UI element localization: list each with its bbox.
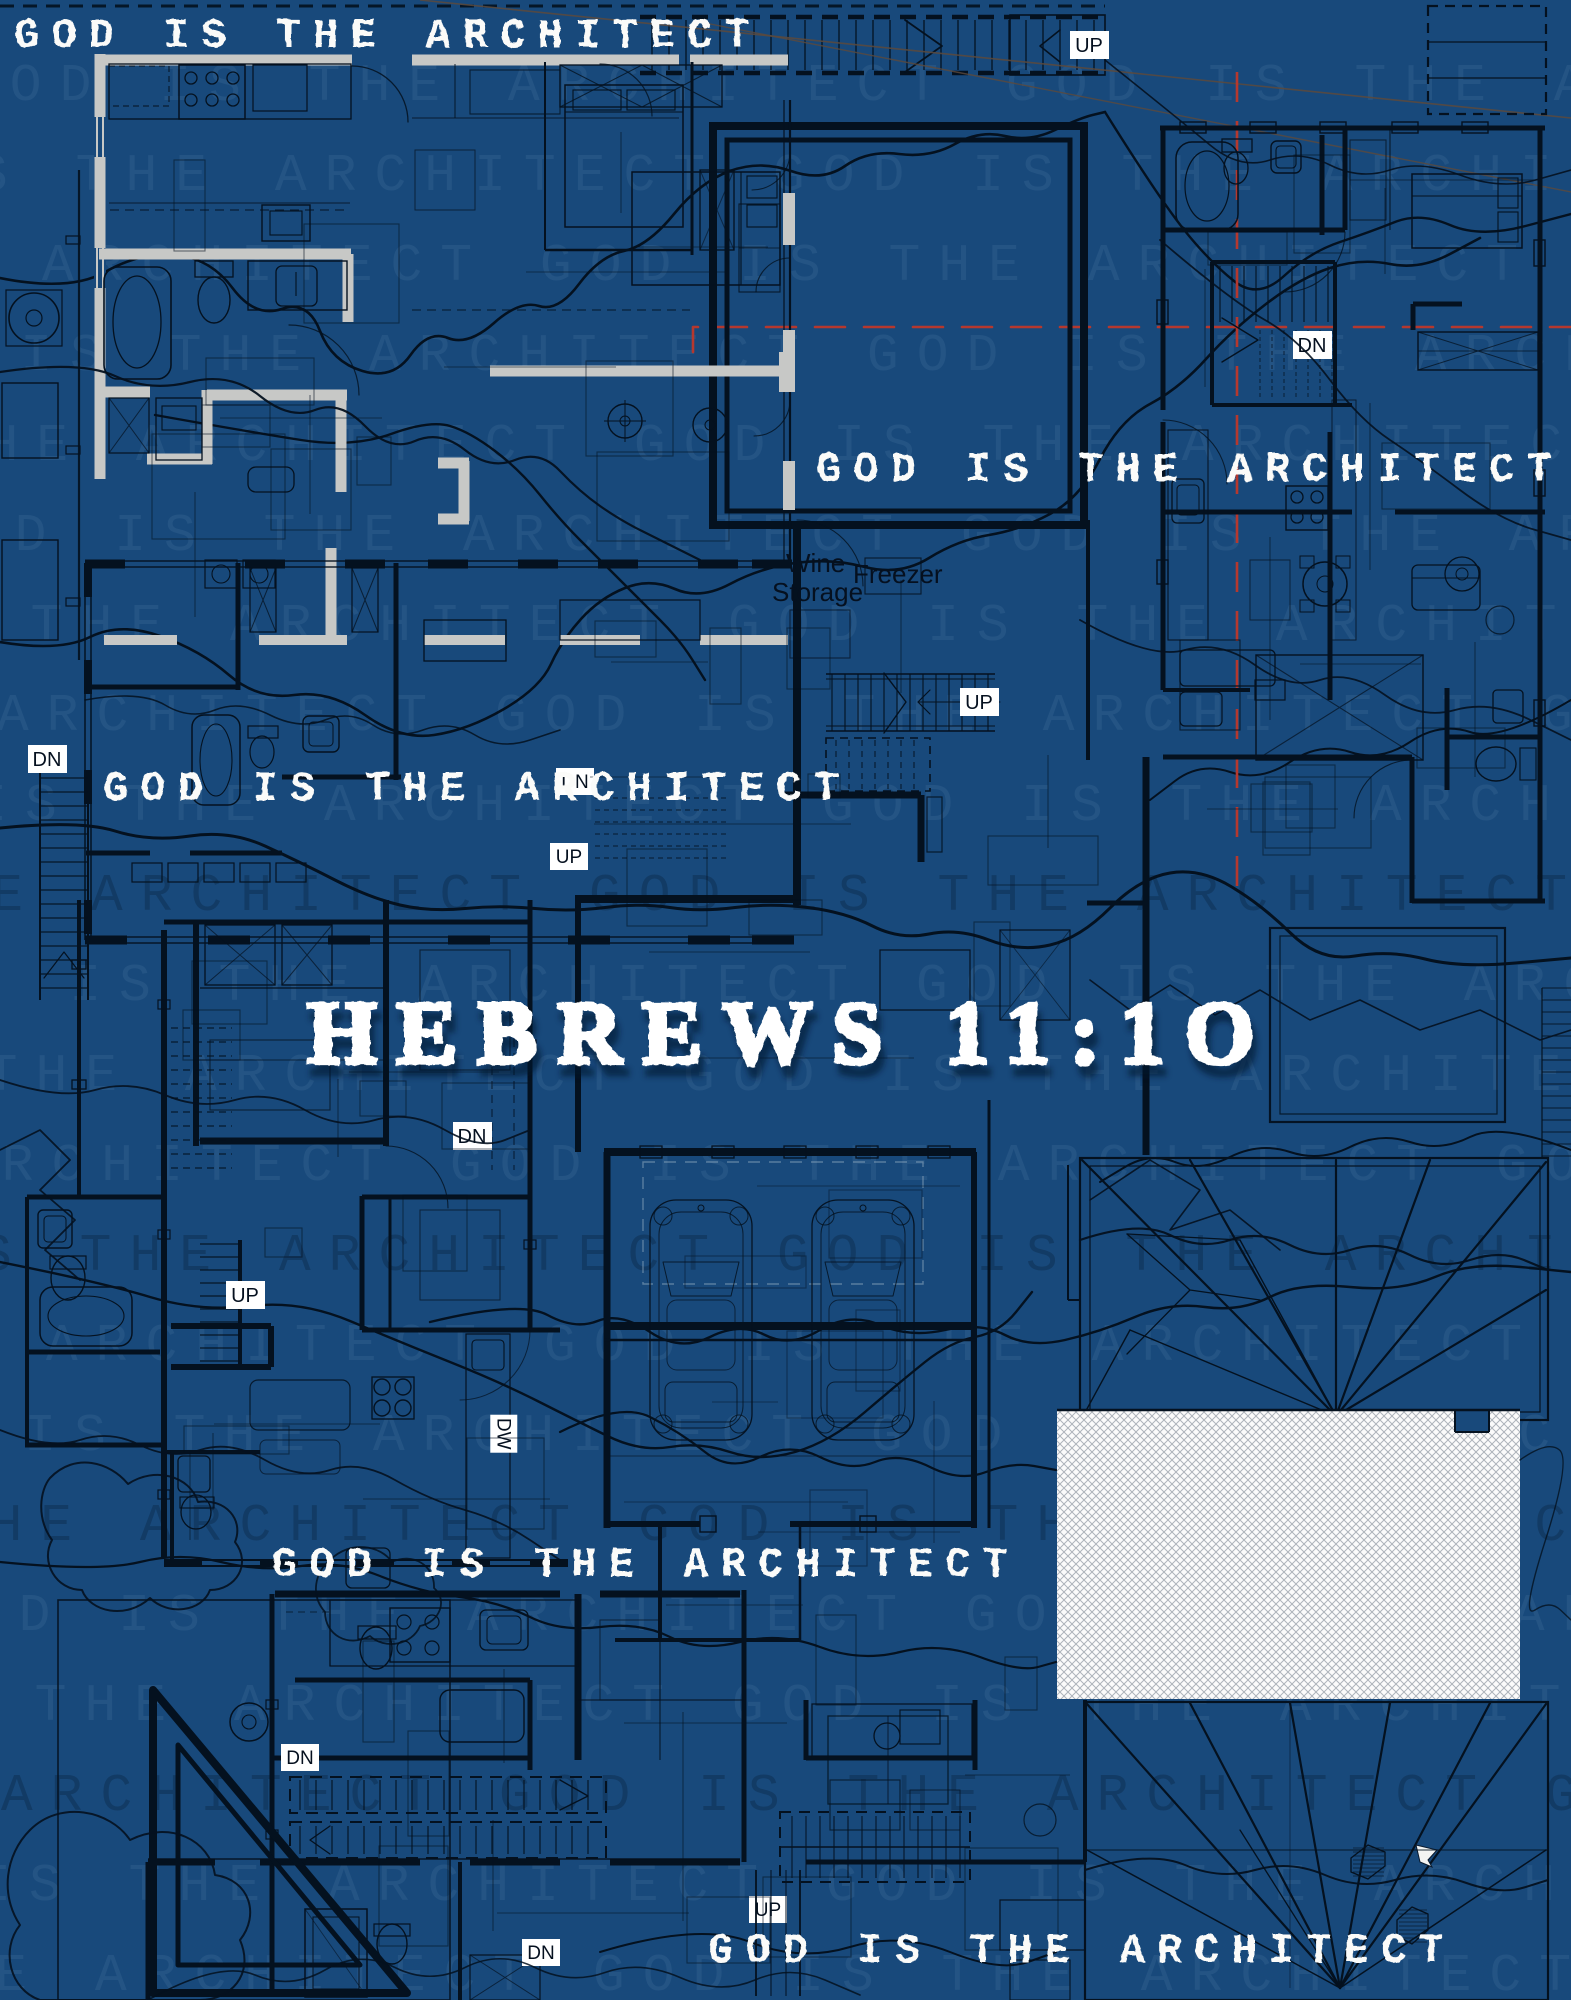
svg-text:GOD IS THE ARCHITECT GOD IS TH: GOD IS THE ARCHITECT GOD IS THE ARCHITEC… (0, 686, 1571, 746)
svg-text:UP: UP (965, 692, 993, 714)
svg-text:GOD IS THE ARCHITECT: GOD IS THE ARCHITECT (103, 765, 851, 813)
svg-text:Freezer: Freezer (853, 559, 943, 589)
svg-text:GOD IS THE ARCHITECT: GOD IS THE ARCHITECT (708, 1927, 1456, 1975)
svg-text:UP: UP (1075, 35, 1103, 57)
svg-text:DW: DW (492, 1418, 513, 1450)
svg-text:DN: DN (527, 1943, 554, 1964)
svg-text:UP: UP (231, 1285, 259, 1307)
svg-text:HEBREWS 11:1O: HEBREWS 11:1O (307, 984, 1275, 1083)
svg-text:DN: DN (33, 749, 62, 771)
svg-text:DN: DN (286, 1748, 313, 1769)
svg-text:Storage: Storage (772, 577, 863, 607)
svg-text:GOD IS THE ARCHITECT: GOD IS THE ARCHITECT (816, 446, 1564, 494)
svg-text:Wine: Wine (786, 548, 845, 578)
svg-text:GOD IS THE ARCHITECT: GOD IS THE ARCHITECT (14, 12, 762, 60)
svg-text:UP: UP (755, 1900, 781, 1921)
svg-text:GOD IS THE ARCHITECT: GOD IS THE ARCHITECT (272, 1541, 1020, 1589)
svg-text:UP: UP (556, 847, 582, 868)
svg-text:DN: DN (1298, 335, 1327, 357)
svg-text:DN: DN (458, 1126, 487, 1148)
